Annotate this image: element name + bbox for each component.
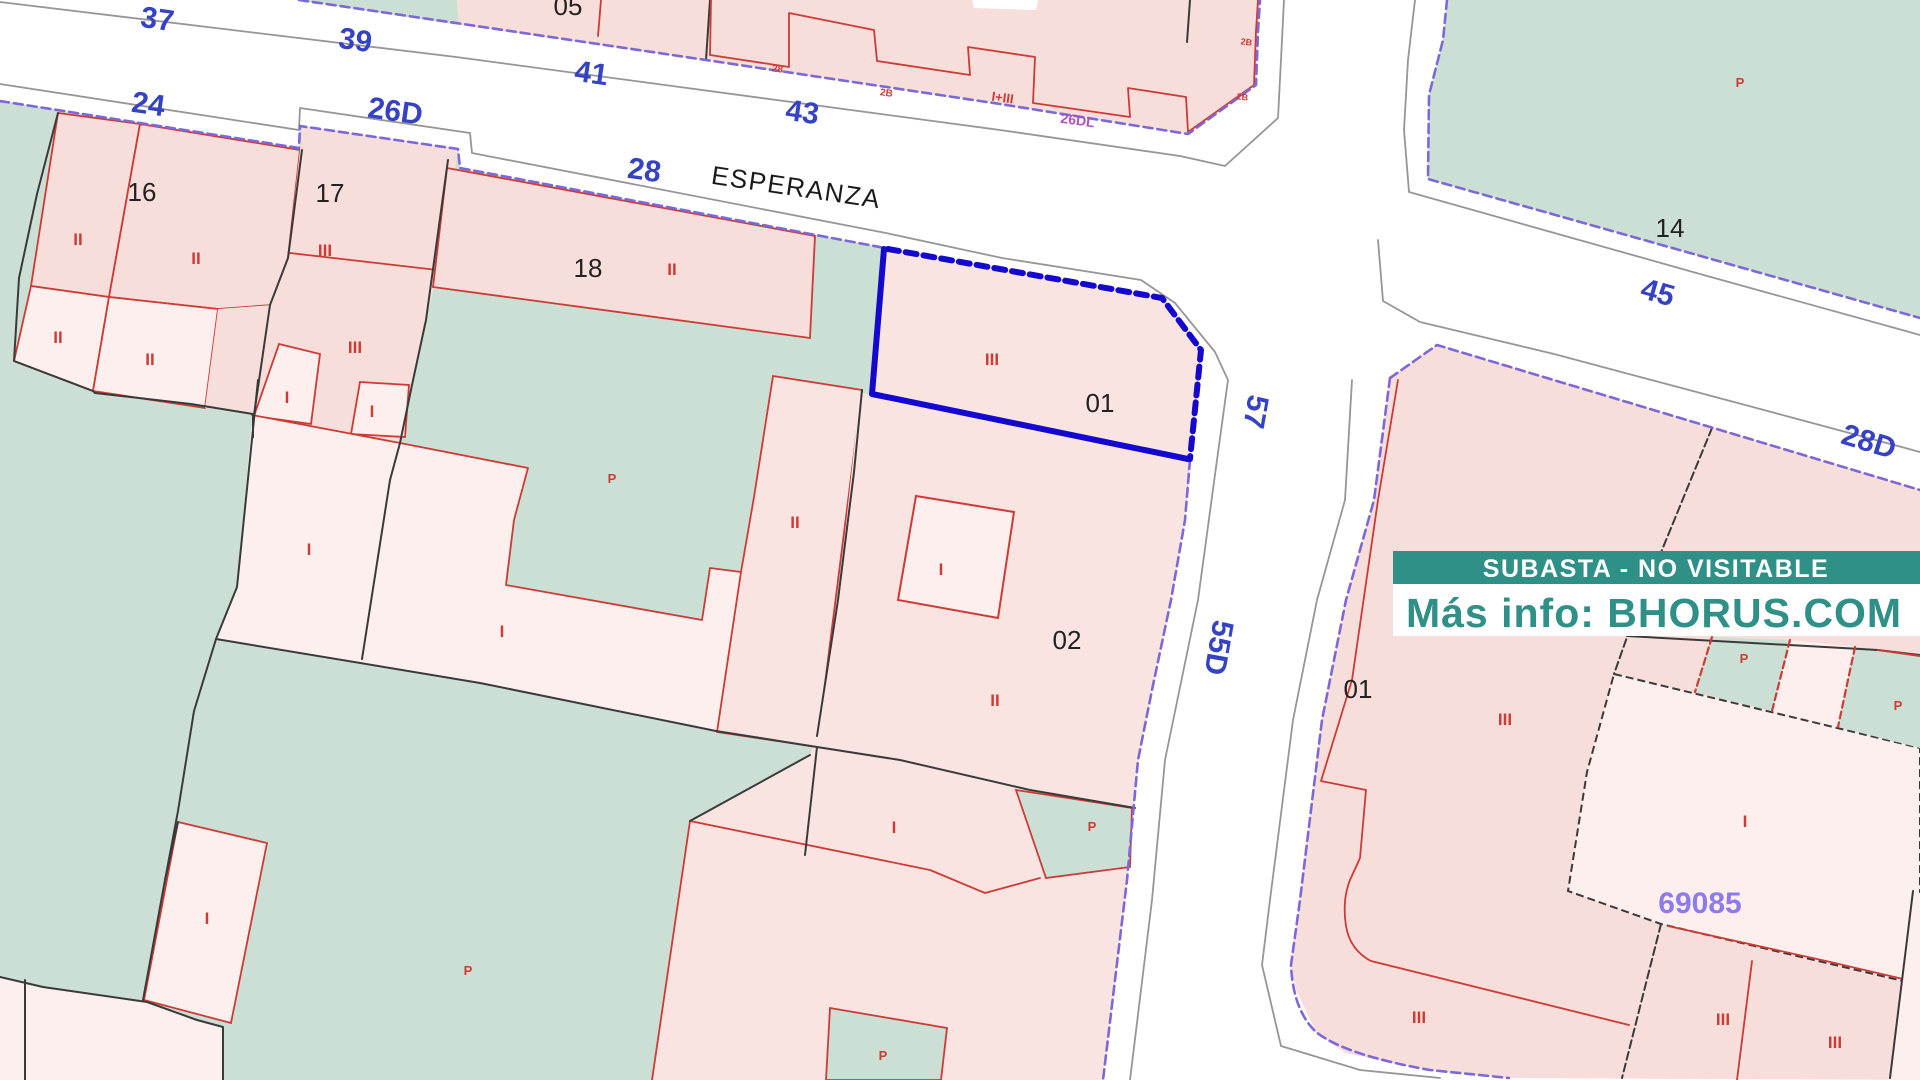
svg-text:16: 16 — [128, 177, 157, 207]
svg-text:III: III — [1716, 1010, 1730, 1029]
svg-text:III: III — [1412, 1008, 1426, 1027]
svg-text:14: 14 — [1656, 213, 1685, 243]
svg-text:37: 37 — [139, 1, 177, 38]
svg-text:2B: 2B — [879, 87, 893, 100]
svg-text:III: III — [318, 241, 332, 260]
svg-text:17: 17 — [316, 178, 345, 208]
svg-text:II: II — [191, 249, 200, 268]
svg-text:P: P — [464, 963, 473, 978]
svg-text:P: P — [1736, 75, 1745, 90]
svg-text:01: 01 — [1086, 388, 1115, 418]
svg-text:I: I — [939, 560, 944, 579]
svg-text:II: II — [667, 260, 676, 279]
svg-text:I: I — [285, 388, 290, 407]
svg-text:I: I — [307, 540, 312, 559]
svg-text:I: I — [1743, 812, 1748, 831]
svg-text:05: 05 — [554, 0, 583, 21]
svg-text:I: I — [892, 818, 897, 837]
svg-text:SUBASTA - NO VISITABLE: SUBASTA - NO VISITABLE — [1483, 555, 1829, 583]
svg-text:2B: 2B — [1236, 91, 1249, 103]
svg-text:28: 28 — [626, 152, 664, 189]
svg-text:P: P — [1740, 651, 1749, 666]
svg-text:P: P — [879, 1048, 888, 1063]
svg-text:41: 41 — [573, 55, 611, 92]
svg-text:24: 24 — [130, 86, 168, 123]
svg-text:02: 02 — [1053, 625, 1082, 655]
svg-text:II: II — [145, 350, 154, 369]
svg-text:57: 57 — [1236, 392, 1274, 431]
svg-text:Más info: BHORUS.COM: Más info: BHORUS.COM — [1406, 590, 1902, 636]
svg-text:28: 28 — [771, 63, 784, 76]
svg-text:II: II — [990, 691, 999, 710]
svg-text:2B: 2B — [1240, 36, 1253, 48]
svg-text:III: III — [1498, 710, 1512, 729]
svg-text:III: III — [1828, 1033, 1842, 1052]
svg-text:II: II — [53, 328, 62, 347]
svg-text:39: 39 — [337, 22, 375, 59]
svg-text:43: 43 — [784, 94, 822, 131]
svg-text:P: P — [1088, 819, 1097, 834]
svg-text:III: III — [985, 350, 999, 369]
svg-text:I: I — [205, 909, 210, 928]
svg-text:I+III: I+III — [991, 89, 1015, 107]
svg-text:I: I — [500, 622, 505, 641]
svg-text:I: I — [370, 402, 375, 421]
svg-text:69085: 69085 — [1658, 887, 1741, 920]
svg-text:P: P — [1894, 698, 1903, 713]
svg-text:P: P — [608, 471, 617, 486]
svg-text:III: III — [348, 338, 362, 357]
svg-text:01: 01 — [1344, 674, 1373, 704]
svg-text:18: 18 — [574, 253, 603, 283]
svg-text:II: II — [790, 513, 799, 532]
svg-text:II: II — [73, 230, 82, 249]
